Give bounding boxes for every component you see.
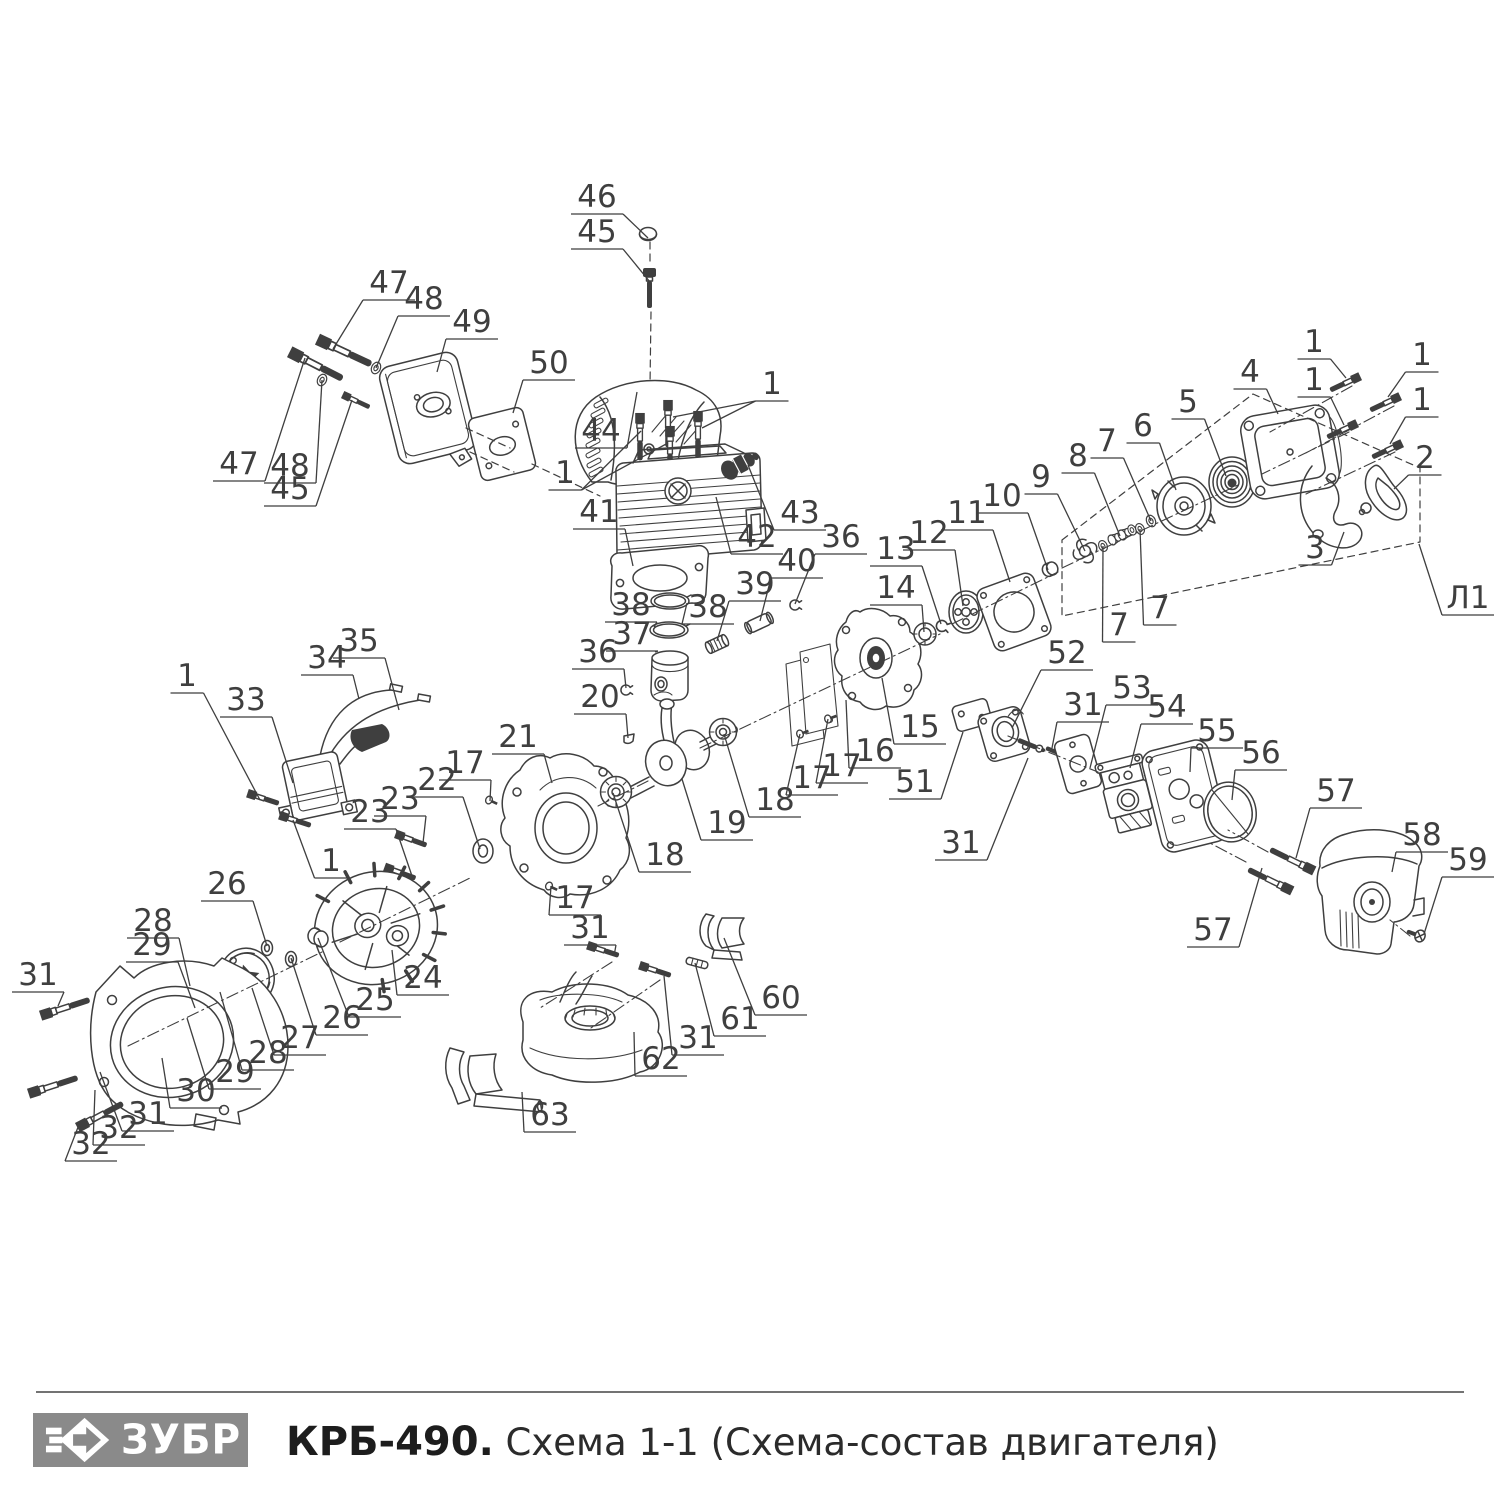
svg-text:53: 53 bbox=[1112, 670, 1151, 706]
schema-title: КРБ-490. Схема 1-1 (Схема-состав двигате… bbox=[286, 1419, 1219, 1465]
callout-19-49: 19 bbox=[682, 779, 753, 841]
part-49-muffler bbox=[377, 350, 482, 480]
svg-text:31: 31 bbox=[1063, 687, 1102, 723]
svg-text:61: 61 bbox=[720, 1001, 759, 1037]
svg-text:62: 62 bbox=[641, 1041, 680, 1077]
svg-text:58: 58 bbox=[1402, 817, 1441, 853]
svg-text:9: 9 bbox=[1031, 459, 1051, 495]
svg-text:19: 19 bbox=[707, 805, 746, 841]
svg-text:40: 40 bbox=[777, 543, 816, 579]
svg-text:37: 37 bbox=[612, 616, 651, 652]
part-61-pin bbox=[685, 957, 708, 969]
part-39-needle-bearing bbox=[704, 634, 730, 655]
callout-50-5: 50 bbox=[513, 345, 575, 413]
svg-text:29: 29 bbox=[132, 927, 171, 963]
svg-text:Л1: Л1 bbox=[1446, 580, 1489, 616]
svg-text:47: 47 bbox=[219, 446, 258, 482]
svg-text:33: 33 bbox=[226, 682, 265, 718]
svg-text:48: 48 bbox=[404, 281, 443, 317]
part-31-tank-bolts bbox=[586, 941, 672, 980]
svg-text:31: 31 bbox=[18, 957, 57, 993]
callout-45-1: 45 bbox=[571, 214, 650, 282]
svg-text:1: 1 bbox=[321, 843, 341, 879]
callout-7-72: 7 bbox=[1140, 529, 1177, 626]
callout-59-86: 59 bbox=[1424, 842, 1494, 934]
svg-text:1: 1 bbox=[177, 658, 197, 694]
part-11-gasket bbox=[975, 571, 1054, 654]
part-15-crankcase-right bbox=[835, 609, 922, 710]
callout-1-69: 1 bbox=[1390, 382, 1439, 444]
svg-text:1: 1 bbox=[555, 455, 575, 491]
callout-1-32: 1 bbox=[293, 820, 348, 879]
svg-text:4: 4 bbox=[1240, 354, 1260, 390]
svg-text:21: 21 bbox=[498, 719, 537, 755]
svg-text:29: 29 bbox=[215, 1054, 254, 1090]
callout-Л1-74: Л1 bbox=[1419, 544, 1494, 616]
callout-31-36: 31 bbox=[12, 957, 64, 1006]
svg-text:3: 3 bbox=[1305, 530, 1325, 566]
part-26-washer bbox=[262, 941, 273, 956]
svg-text:26: 26 bbox=[207, 866, 246, 902]
svg-text:44: 44 bbox=[581, 413, 620, 449]
svg-text:1: 1 bbox=[762, 366, 782, 402]
svg-text:45: 45 bbox=[577, 214, 616, 250]
part-10-nut bbox=[1041, 560, 1060, 578]
part-21-crankcase-left bbox=[501, 754, 630, 898]
zubr-logo-icon bbox=[42, 1417, 114, 1463]
svg-text:1: 1 bbox=[1412, 337, 1432, 373]
svg-text:47: 47 bbox=[369, 265, 408, 301]
svg-text:1: 1 bbox=[1304, 324, 1324, 360]
part-40-piston-pin bbox=[743, 611, 774, 634]
part-18-bearing-right bbox=[710, 719, 737, 746]
svg-text:35: 35 bbox=[339, 623, 378, 659]
zubr-logo: ЗУБР bbox=[33, 1413, 248, 1467]
part-34-35-coil-wires bbox=[320, 684, 430, 764]
svg-text:7: 7 bbox=[1109, 607, 1129, 643]
zubr-logo-text: ЗУБР bbox=[121, 1420, 241, 1461]
part-36-pin-clip bbox=[621, 685, 633, 695]
svg-text:50: 50 bbox=[529, 345, 568, 381]
svg-text:23: 23 bbox=[350, 794, 389, 830]
svg-text:31: 31 bbox=[941, 825, 980, 861]
callout-47-2: 47 bbox=[333, 265, 415, 349]
svg-text:15: 15 bbox=[900, 709, 939, 745]
svg-text:24: 24 bbox=[403, 960, 442, 996]
svg-text:18: 18 bbox=[645, 837, 684, 873]
svg-text:49: 49 bbox=[452, 304, 491, 340]
part-38-piston-rings bbox=[650, 593, 691, 638]
svg-text:43: 43 bbox=[780, 495, 819, 531]
callout-32-46: 32 bbox=[65, 1122, 117, 1162]
svg-text:1: 1 bbox=[1412, 382, 1432, 418]
svg-text:7: 7 bbox=[1150, 590, 1170, 626]
callout-7-73: 7 bbox=[1103, 546, 1136, 643]
svg-text:36: 36 bbox=[821, 519, 860, 555]
svg-text:26: 26 bbox=[322, 1000, 361, 1036]
svg-text:41: 41 bbox=[579, 494, 618, 530]
svg-text:20: 20 bbox=[580, 679, 619, 715]
part-45-46-cover-screw bbox=[640, 228, 657, 387]
svg-text:56: 56 bbox=[1241, 735, 1280, 771]
svg-text:2: 2 bbox=[1415, 440, 1435, 476]
callout-38-16: 38 bbox=[682, 589, 734, 625]
callout-57-83: 57 bbox=[1187, 868, 1262, 948]
part-2-starter-handle bbox=[1360, 465, 1407, 519]
part-60-clamp bbox=[700, 914, 744, 960]
svg-text:45: 45 bbox=[270, 471, 309, 507]
svg-text:14: 14 bbox=[876, 570, 915, 606]
svg-text:6: 6 bbox=[1133, 408, 1153, 444]
svg-text:59: 59 bbox=[1448, 842, 1487, 878]
svg-text:57: 57 bbox=[1316, 773, 1355, 809]
svg-text:51: 51 bbox=[895, 764, 934, 800]
svg-text:42: 42 bbox=[737, 519, 776, 555]
svg-text:30: 30 bbox=[176, 1073, 215, 1109]
callout-6-63: 6 bbox=[1127, 408, 1177, 490]
svg-text:52: 52 bbox=[1047, 635, 1086, 671]
part-13-circlip bbox=[935, 619, 950, 633]
svg-text:63: 63 bbox=[530, 1097, 569, 1133]
callout-26-33: 26 bbox=[201, 866, 267, 946]
svg-text:8: 8 bbox=[1068, 438, 1088, 474]
svg-text:60: 60 bbox=[761, 980, 800, 1016]
callout-1-28: 1 bbox=[171, 658, 261, 800]
svg-text:46: 46 bbox=[577, 179, 616, 215]
callout-20-22: 20 bbox=[574, 679, 628, 738]
svg-text:16: 16 bbox=[855, 733, 894, 769]
part-17-screw bbox=[484, 795, 498, 807]
svg-text:7: 7 bbox=[1097, 423, 1117, 459]
svg-text:1: 1 bbox=[1304, 362, 1324, 398]
part-16-gaskets bbox=[786, 644, 838, 746]
svg-text:17: 17 bbox=[445, 745, 484, 781]
schema-code: КРБ-490. bbox=[286, 1419, 494, 1465]
svg-text:31: 31 bbox=[570, 910, 609, 946]
svg-text:55: 55 bbox=[1197, 713, 1236, 749]
svg-text:38: 38 bbox=[688, 589, 727, 625]
svg-text:57: 57 bbox=[1193, 912, 1232, 948]
exploded-parts-diagram: 4645474849504748454411414243383837394036… bbox=[0, 0, 1500, 1500]
part-37-piston bbox=[651, 651, 688, 701]
svg-text:10: 10 bbox=[982, 478, 1021, 514]
footer-divider bbox=[36, 1391, 1464, 1393]
svg-text:12: 12 bbox=[909, 515, 948, 551]
callout-4-65: 4 bbox=[1234, 354, 1279, 414]
schema-name: Схема 1-1 (Схема-состав двигателя) bbox=[494, 1421, 1219, 1464]
part-6-starter-pulley bbox=[1152, 477, 1215, 535]
svg-text:54: 54 bbox=[1147, 689, 1186, 725]
callout-63-92: 63 bbox=[522, 1092, 576, 1133]
svg-text:32: 32 bbox=[71, 1126, 110, 1162]
part-1-starter-bolts bbox=[1325, 372, 1404, 461]
svg-text:18: 18 bbox=[755, 782, 794, 818]
part-22-washer bbox=[473, 839, 493, 863]
part-20-woodruff-key bbox=[624, 734, 634, 743]
svg-text:5: 5 bbox=[1178, 384, 1198, 420]
svg-text:36: 36 bbox=[578, 634, 617, 670]
part-4-starter-housing bbox=[1238, 402, 1346, 501]
